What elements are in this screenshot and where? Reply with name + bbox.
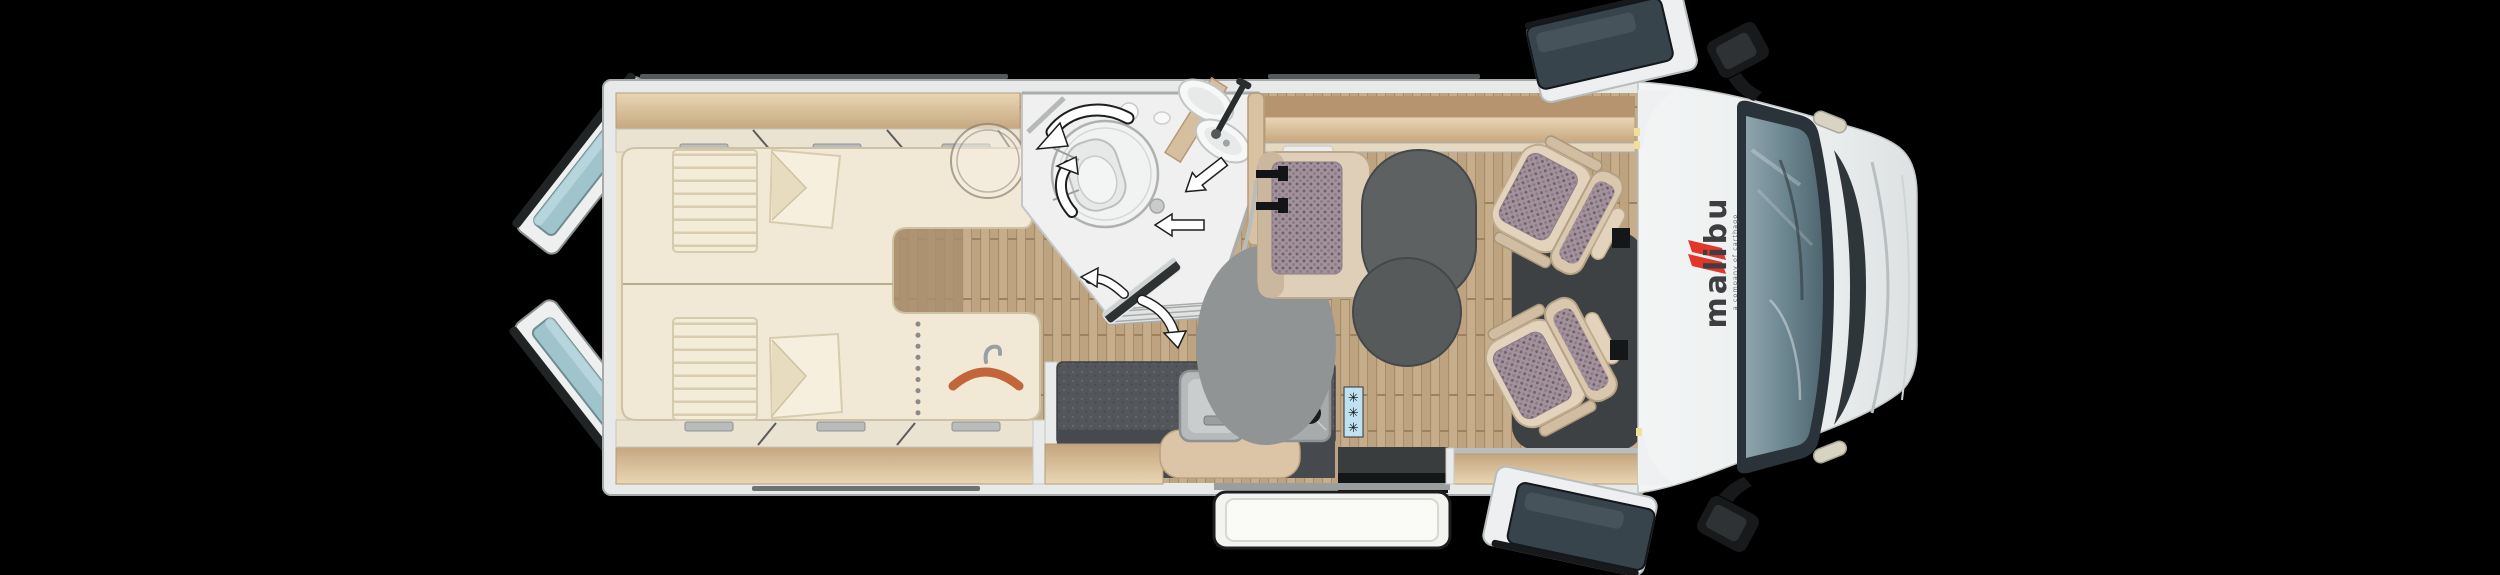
logo-text: malibu [1699, 196, 1734, 329]
door-threshold [1214, 483, 1450, 490]
logo-tagline: a company of carthago [1731, 214, 1739, 310]
ceiling-light [1634, 128, 1640, 136]
pillow-bottom-bed [770, 334, 842, 418]
top-wall-rail-2 [1268, 74, 1480, 79]
locker-handle [952, 422, 1000, 431]
snowflake-icon: ✳ [1348, 406, 1359, 421]
side-mirror-bottom [1693, 477, 1762, 556]
ghost-table-icon [951, 124, 1025, 198]
entry-step-outside [1214, 492, 1450, 548]
kitchen-cabinet-band [1045, 444, 1163, 484]
side-mirror-top [1703, 18, 1772, 101]
bench-seat [1256, 152, 1370, 298]
motorhome-floorplan: ✳ ✳ ✳ [0, 0, 2500, 575]
ceiling-light [1636, 428, 1642, 436]
floorplan-canvas: ✳ ✳ ✳ [0, 0, 2500, 575]
locker-handle [817, 422, 865, 431]
overhead-lockers-bottom [616, 420, 1045, 484]
ceiling-light [1634, 141, 1640, 149]
blanket-bottom-bed [673, 318, 757, 420]
fridge-badge: ✳ ✳ ✳ [1344, 387, 1363, 437]
soap-dish [1154, 112, 1170, 124]
snowflake-icon: ✳ [1348, 391, 1359, 406]
seat-belt [1610, 340, 1628, 360]
top-wall-rail [640, 74, 1008, 79]
overhead-shelf-dinette [1265, 96, 1635, 152]
snowflake-icon: ✳ [1348, 421, 1359, 436]
bedroom-step [893, 228, 963, 314]
locker-handle [685, 422, 733, 431]
blanket-top-bed [673, 150, 757, 252]
pillow-top-bed [770, 150, 840, 228]
dinette-table [1353, 150, 1476, 366]
windshield [1737, 101, 1834, 474]
bottom-wall-window-rail [752, 486, 980, 491]
floor-drain [1150, 199, 1164, 213]
seat-belt [1612, 228, 1630, 248]
